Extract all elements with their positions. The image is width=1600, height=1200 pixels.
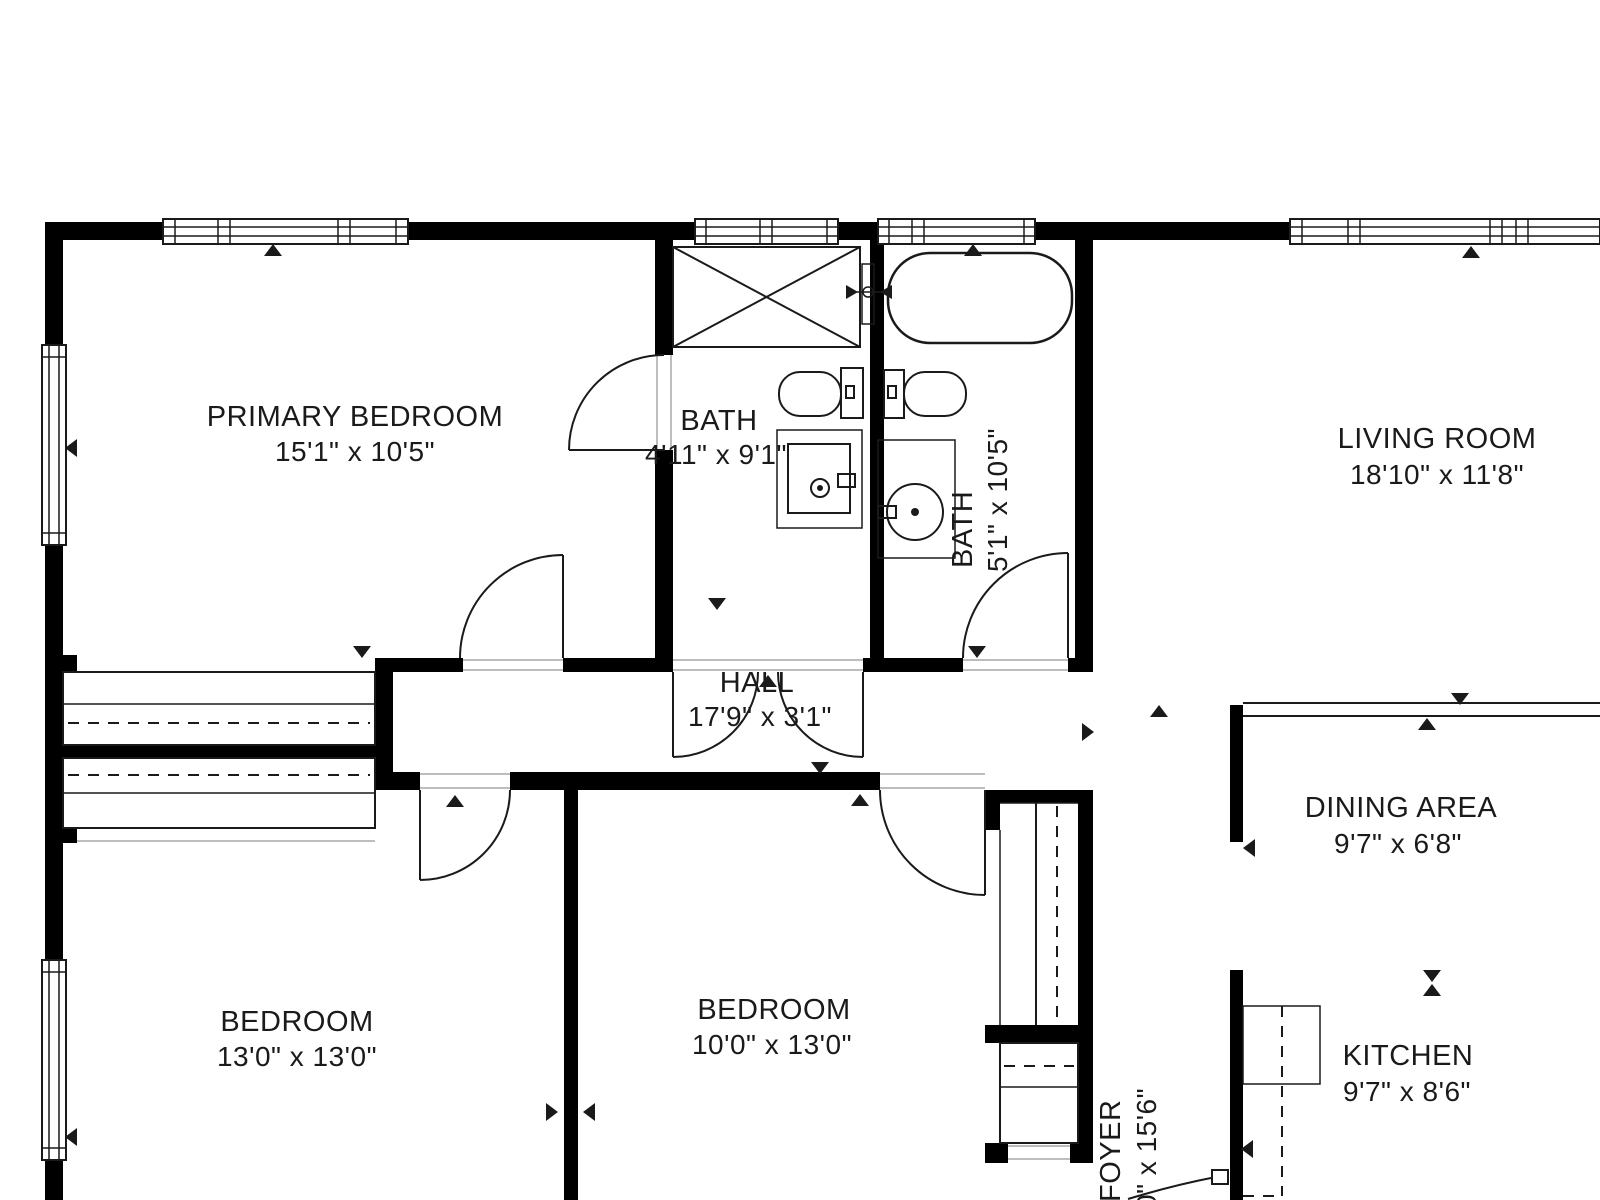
door-primary-bedroom xyxy=(460,555,563,658)
wall-hall-top-3 xyxy=(863,658,884,672)
wall-bath2-bottom-1 xyxy=(884,658,963,672)
label-foyer: FOYER xyxy=(1095,1100,1127,1200)
marker-up-icon xyxy=(264,244,282,256)
door-bath1-from-bedroom xyxy=(569,355,664,450)
wall-kitchen-left xyxy=(1230,970,1243,1200)
label-bath1: BATH xyxy=(680,405,757,437)
wall-closet-nub-bottom xyxy=(63,828,77,843)
wall-b2closet-right xyxy=(1078,790,1093,1163)
window-bath1-top xyxy=(695,219,838,244)
door-bedroom1 xyxy=(420,790,510,880)
window-bedroom-left xyxy=(42,960,66,1160)
window-primary-left xyxy=(42,345,66,545)
window-primary-top xyxy=(163,219,408,244)
wall-hall-top-2 xyxy=(563,658,655,672)
dims-foyer: 0" x 15'6" xyxy=(1131,1088,1162,1200)
label-primary-bedroom: PRIMARY BEDROOM xyxy=(207,401,503,433)
label-dining-area: DINING AREA xyxy=(1305,792,1498,824)
dims-primary-bedroom: 15'1" x 10'5" xyxy=(275,436,435,467)
sink-icon xyxy=(878,440,955,558)
wall-living-left xyxy=(1075,240,1093,672)
wall-closet-east xyxy=(375,658,393,790)
wall-b2closet-top xyxy=(985,790,1093,803)
dining-counter xyxy=(1243,703,1600,716)
wall-bath1-left-upper xyxy=(655,240,673,355)
toilet-icon xyxy=(779,368,863,418)
wall-b2closet-bottom xyxy=(985,1025,1093,1043)
dims-dining-area: 9'7" x 6'8" xyxy=(1334,828,1462,859)
wall-foyercloset-bottom-right xyxy=(1070,1143,1093,1163)
label-hall: HALL xyxy=(720,667,795,699)
label-bedroom2: BEDROOM xyxy=(697,994,850,1026)
dims-living-room: 18'10" x 11'8" xyxy=(1350,459,1524,490)
floor-plan-canvas: PRIMARY BEDROOM 15'1" x 10'5" BATH 4'11"… xyxy=(0,0,1600,1200)
wall-bath2-bottom-2 xyxy=(1068,658,1093,672)
bedroom2-closet xyxy=(1000,803,1078,1025)
window-living-top xyxy=(1290,219,1600,244)
dims-kitchen: 9'7" x 8'6" xyxy=(1343,1076,1471,1107)
hourglass-marker-icon xyxy=(1423,970,1441,996)
marker-up-icon xyxy=(1418,718,1436,730)
wall-bedroom-divider xyxy=(564,790,578,1200)
wall-hall-bottom-1 xyxy=(393,772,420,790)
label-kitchen: KITCHEN xyxy=(1343,1040,1474,1072)
dims-hall: 17'9" x 3'1" xyxy=(688,701,832,732)
marker-up-icon xyxy=(851,794,869,806)
marker-up-icon xyxy=(964,244,982,256)
marker-up-icon xyxy=(446,795,464,807)
wall-b2closet-stub xyxy=(985,790,1000,830)
dims-bedroom2: 10'0" x 13'0" xyxy=(692,1029,852,1060)
marker-down-icon xyxy=(353,646,371,658)
window-bath2-top xyxy=(878,219,1035,244)
marker-down-icon xyxy=(708,598,726,610)
marker-left-icon xyxy=(583,1103,595,1121)
shower-icon xyxy=(673,247,860,347)
dims-bath2: 5'1" x 10'5" xyxy=(982,428,1013,572)
dims-bath1: 4'11" x 9'1" xyxy=(645,439,787,470)
marker-left-icon xyxy=(1243,839,1255,857)
wall-hall-top-1 xyxy=(393,658,463,672)
fridge-icon xyxy=(1243,1006,1320,1196)
marker-right-icon xyxy=(546,1103,558,1121)
dims-bedroom1: 13'0" x 13'0" xyxy=(217,1041,377,1072)
marker-right-icon xyxy=(1082,723,1094,741)
toilet-icon xyxy=(884,370,966,418)
wall-dining-left xyxy=(1230,705,1243,842)
sink-icon xyxy=(777,430,862,528)
marker-up-icon xyxy=(1150,705,1168,717)
wall-foyercloset-bottom-left xyxy=(985,1143,1008,1163)
wall-bath-divider xyxy=(870,240,884,658)
closet-north xyxy=(63,672,375,745)
label-bath2: BATH xyxy=(947,491,979,568)
wall-closet-divider xyxy=(63,745,375,758)
marker-down-icon xyxy=(968,646,986,658)
floor-plan: PRIMARY BEDROOM 15'1" x 10'5" BATH 4'11"… xyxy=(0,0,1600,1200)
door-bedroom2 xyxy=(880,790,985,895)
wall-closet-nub-top xyxy=(63,655,77,672)
wall-bath1-left-lower xyxy=(655,450,673,672)
wall-hall-bottom-2 xyxy=(510,772,880,790)
marker-up-icon xyxy=(1462,246,1480,258)
foyer-closet xyxy=(1000,1043,1078,1159)
label-bedroom1: BEDROOM xyxy=(220,1006,373,1038)
label-living-room: LIVING ROOM xyxy=(1338,423,1537,455)
